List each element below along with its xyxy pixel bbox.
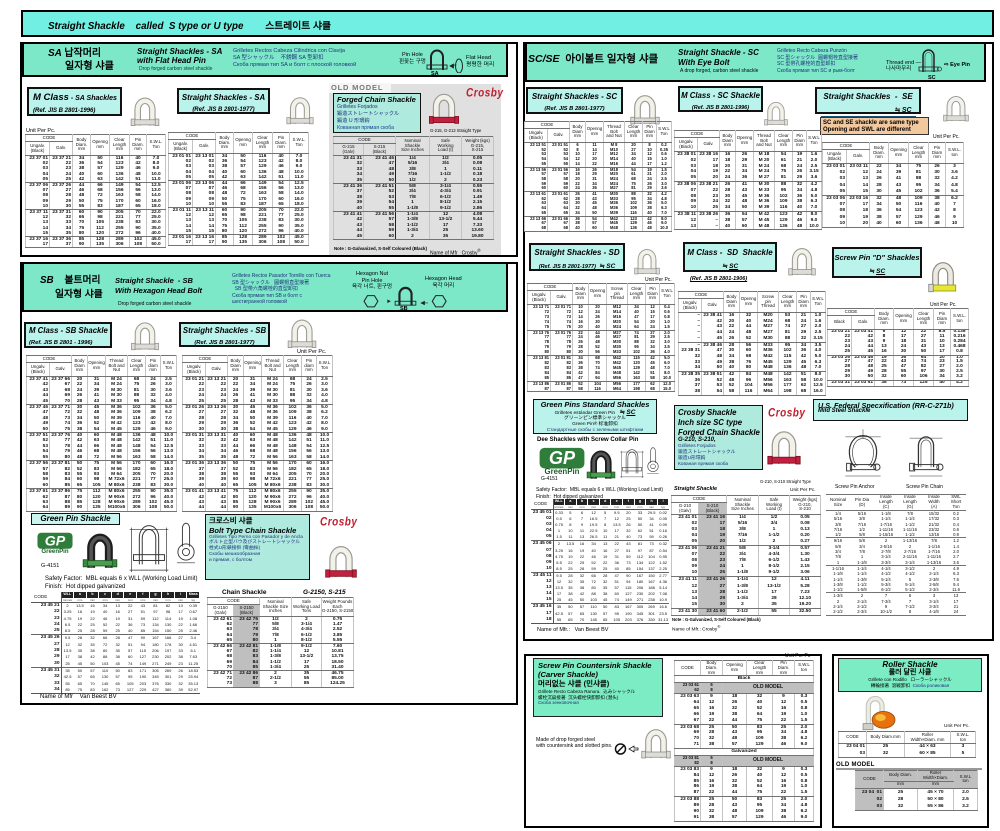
svg-text:GP: GP [549,448,576,468]
svg-text:GreenPin: GreenPin [545,467,580,475]
svg-text:GreenPin: GreenPin [41,548,69,554]
svg-text:GP: GP [45,533,66,549]
